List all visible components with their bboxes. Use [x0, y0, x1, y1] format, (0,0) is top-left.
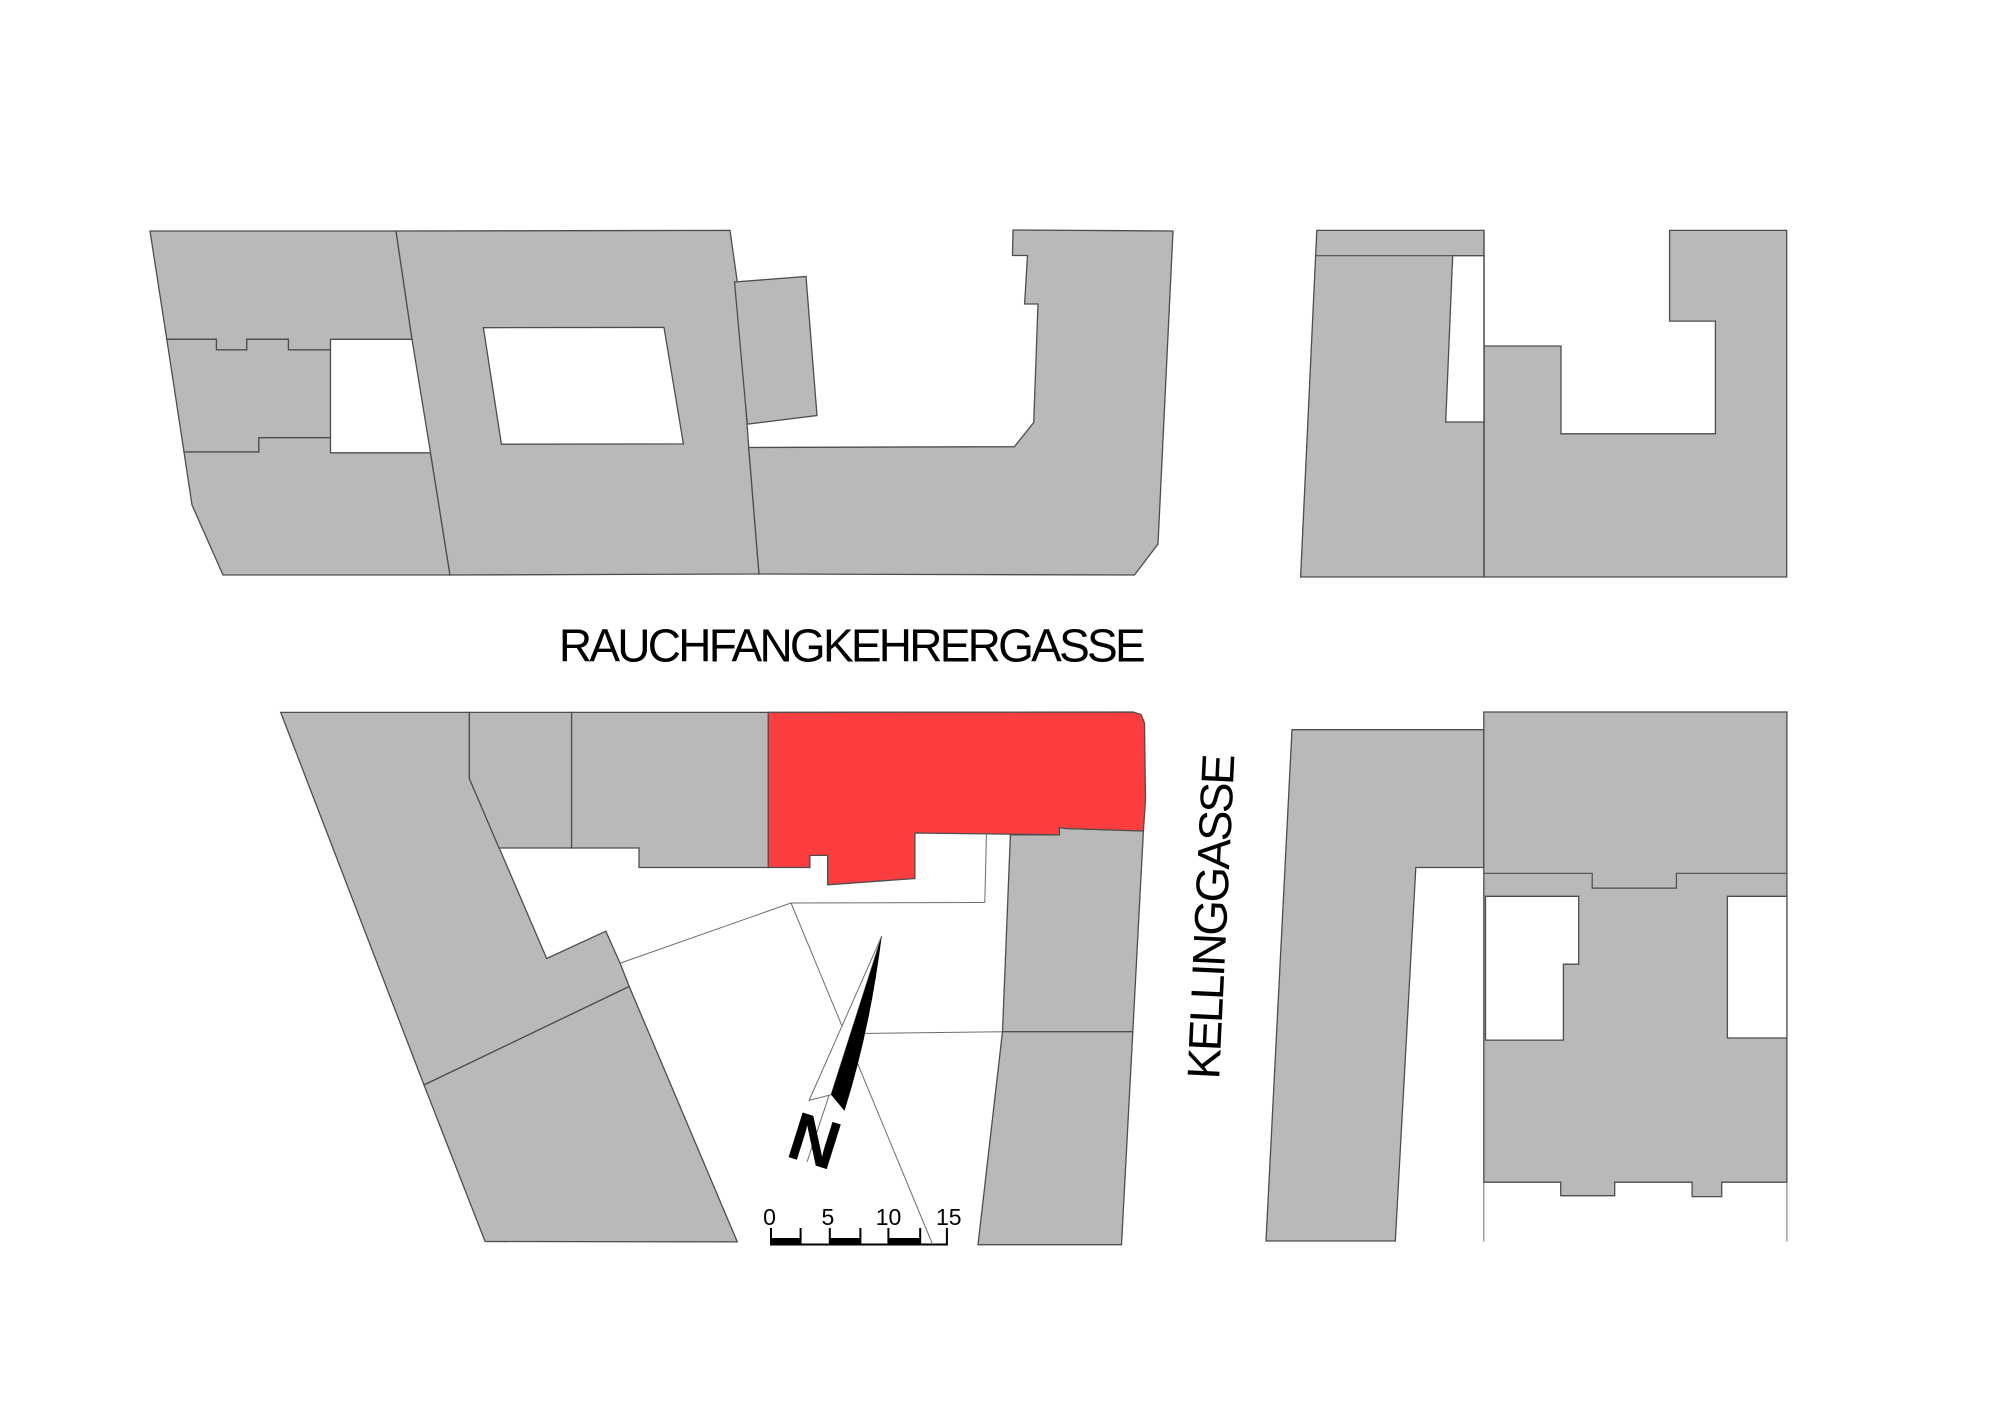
- svg-text:10: 10: [876, 1204, 902, 1230]
- svg-text:RAUCHFANGKEHRERGASSE: RAUCHFANGKEHRERGASSE: [559, 619, 1144, 671]
- svg-text:15: 15: [936, 1204, 962, 1230]
- svg-text:0: 0: [763, 1204, 776, 1230]
- svg-text:KELLINGGASSE: KELLINGGASSE: [1177, 754, 1244, 1080]
- svg-text:N: N: [780, 1098, 850, 1185]
- svg-text:5: 5: [822, 1204, 835, 1230]
